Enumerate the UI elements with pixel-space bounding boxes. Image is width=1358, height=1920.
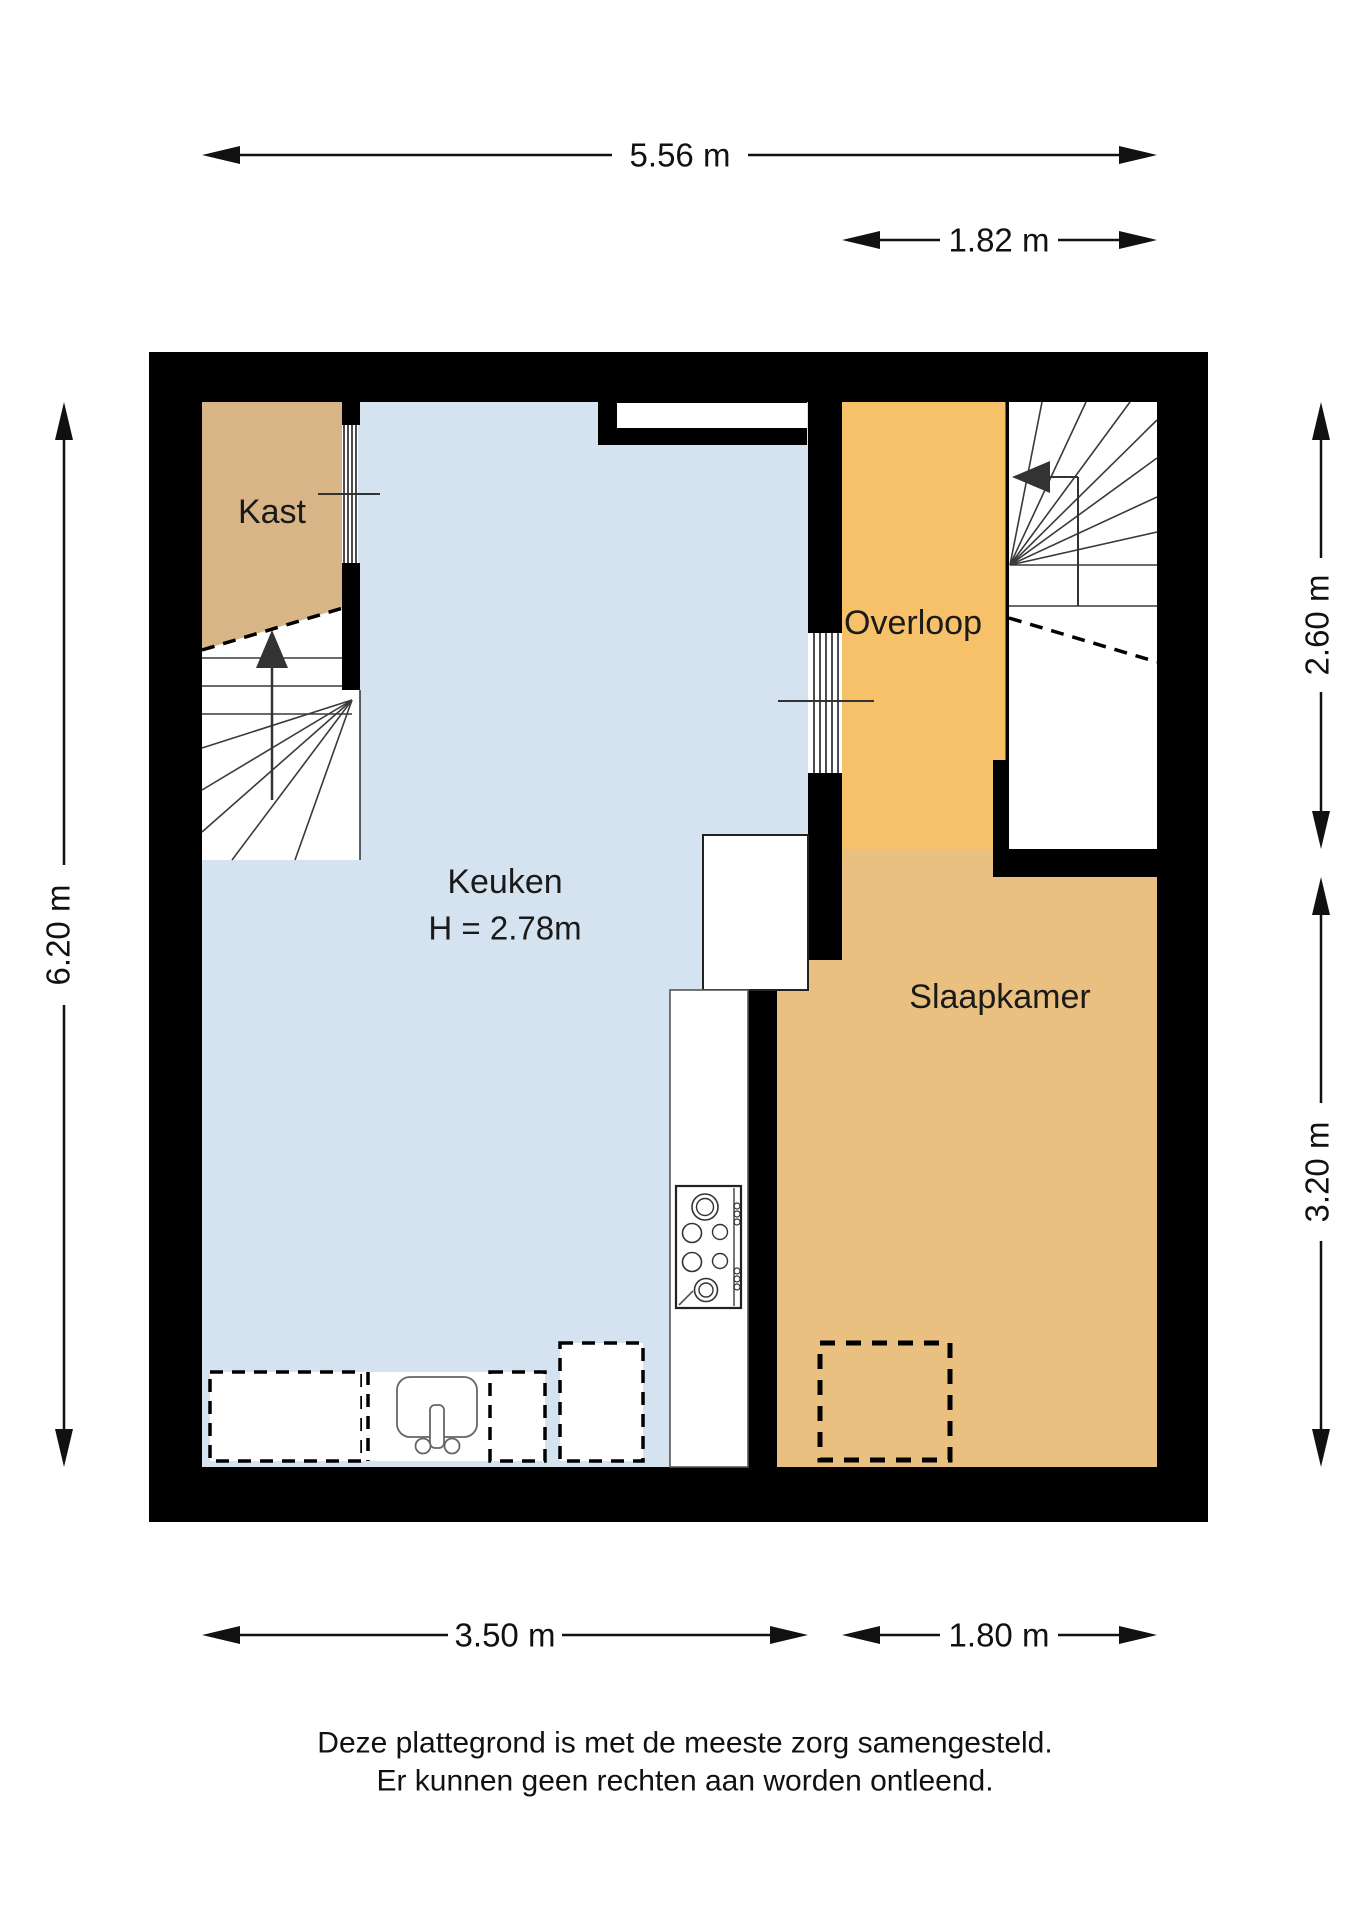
footer-disclaimer-line2: Er kunnen geen rechten aan worden ontlee…: [376, 1765, 993, 1798]
dimension-arrow-icon: [1312, 402, 1330, 440]
dimension-left-total-height: 6.20 m: [40, 402, 77, 1467]
dimension-top-right-width: 1.82 m: [842, 222, 1157, 259]
dimension-label: 5.56 m: [630, 137, 731, 174]
dimension-right-lower-height: 3.20 m: [1299, 877, 1336, 1467]
floorplan-page: Kast Keuken H = 2.78m Overloop Slaapkame…: [0, 0, 1358, 1920]
dimension-top-total-width: 5.56 m: [202, 137, 1157, 174]
dimension-label: 6.20 m: [40, 885, 77, 986]
dimension-arrow-icon: [1312, 877, 1330, 915]
dimension-right-upper-height: 2.60 m: [1299, 402, 1336, 849]
top-wall-window: [598, 402, 807, 445]
dimension-arrow-icon: [202, 146, 240, 164]
room-label-slaapkamer: Slaapkamer: [909, 978, 1090, 1016]
sink-unit: [362, 1372, 490, 1461]
counter-dashed-left: [210, 1372, 362, 1461]
staircase-top-left: [202, 608, 360, 860]
room-label-overloop: Overloop: [844, 604, 982, 642]
dimension-arrow-icon: [55, 402, 73, 440]
stove: [676, 1186, 741, 1308]
sink-faucet: [430, 1405, 444, 1448]
dimension-arrow-icon: [1119, 231, 1157, 249]
dimension-label: 2.60 m: [1299, 575, 1336, 676]
dimension-arrow-icon: [55, 1429, 73, 1467]
room-slaapkamer-floor: [777, 960, 1157, 1467]
dimension-label: 3.50 m: [455, 1617, 556, 1654]
floor-plan-svg: Kast Keuken H = 2.78m Overloop Slaapkame…: [0, 0, 1358, 1920]
dimension-arrow-icon: [842, 231, 880, 249]
dimension-arrow-icon: [1312, 1429, 1330, 1467]
staircase-top-right: [993, 402, 1157, 877]
counter-dashed-middle: [490, 1372, 545, 1461]
dimension-arrow-icon: [1312, 811, 1330, 849]
dimension-arrow-icon: [770, 1626, 808, 1644]
dimension-label: 3.20 m: [1299, 1122, 1336, 1223]
room-label-keuken-height: H = 2.78m: [428, 910, 581, 947]
dimension-bottom-right-width: 1.80 m: [842, 1617, 1157, 1654]
room-label-keuken: Keuken: [447, 863, 562, 901]
dimension-arrow-icon: [1119, 146, 1157, 164]
dimension-label: 1.80 m: [949, 1617, 1050, 1654]
room-label-kast: Kast: [238, 493, 307, 531]
dimension-arrow-icon: [842, 1626, 880, 1644]
footer-disclaimer-line1: Deze plattegrond is met de meeste zorg s…: [317, 1727, 1052, 1760]
counter-dashed-right: [560, 1343, 643, 1461]
kitchen-cabinet: [703, 835, 808, 990]
dimension-bottom-left-width: 3.50 m: [202, 1617, 808, 1654]
dimension-label: 1.82 m: [949, 222, 1050, 259]
dimension-arrow-icon: [202, 1626, 240, 1644]
dimension-arrow-icon: [1119, 1626, 1157, 1644]
